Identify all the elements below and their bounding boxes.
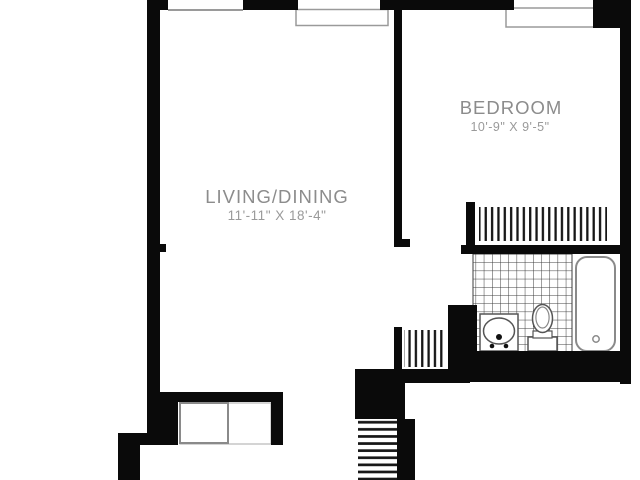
floor-plan: LIVING/DINING 11'-11" X 18'-4" BEDROOM 1… xyxy=(0,0,640,480)
wall-hall-bar xyxy=(355,369,470,383)
wall-partition-upper xyxy=(394,8,402,247)
bedroom-dimensions: 10'-9" X 9'-5" xyxy=(470,120,549,134)
wall-bath-bottom xyxy=(448,351,631,382)
sink-vanity xyxy=(480,314,518,351)
window-living-1 xyxy=(168,9,243,11)
wall-stair-block xyxy=(355,383,405,419)
wall-right xyxy=(620,20,631,384)
window-sills xyxy=(296,8,600,27)
wall-entry-column xyxy=(118,433,140,480)
tub-drain xyxy=(593,336,599,342)
alcove-appliance-box xyxy=(180,403,228,443)
bedroom-closet-rod-hatch xyxy=(479,207,607,241)
window-sill-living xyxy=(296,10,388,26)
wall-partition-foot xyxy=(394,239,410,247)
bathtub xyxy=(576,257,615,351)
wall-stair-right xyxy=(397,419,415,480)
window-sill-bedroom xyxy=(506,8,600,27)
room-labels: LIVING/DINING 11'-11" X 18'-4" BEDROOM 1… xyxy=(205,97,562,223)
bedroom-label: BEDROOM xyxy=(460,97,563,118)
living-dining-dimensions: 11'-11" X 18'-4" xyxy=(228,208,327,223)
sink-basin xyxy=(484,318,515,344)
wall-top-mid xyxy=(243,0,298,10)
sink-faucet xyxy=(496,334,502,340)
wall-left xyxy=(147,0,160,400)
sink-tap-left xyxy=(490,344,495,349)
wall-left-jamb-tick xyxy=(158,244,166,252)
alcove-fixture xyxy=(180,403,271,444)
sink-tap-right xyxy=(504,344,509,349)
wall-closet-bottom xyxy=(461,245,631,254)
wall-alcove-top xyxy=(147,392,283,402)
floor-plan-drawing: LIVING/DINING 11'-11" X 18'-4" BEDROOM 1… xyxy=(0,0,640,480)
stairs xyxy=(358,418,397,480)
living-dining-label: LIVING/DINING xyxy=(205,186,349,207)
wall-alcove-right xyxy=(271,392,283,445)
wall-bath-left-block xyxy=(448,305,477,353)
toilet-tank xyxy=(528,337,557,351)
hall-closet-rod-hatch xyxy=(404,330,445,367)
